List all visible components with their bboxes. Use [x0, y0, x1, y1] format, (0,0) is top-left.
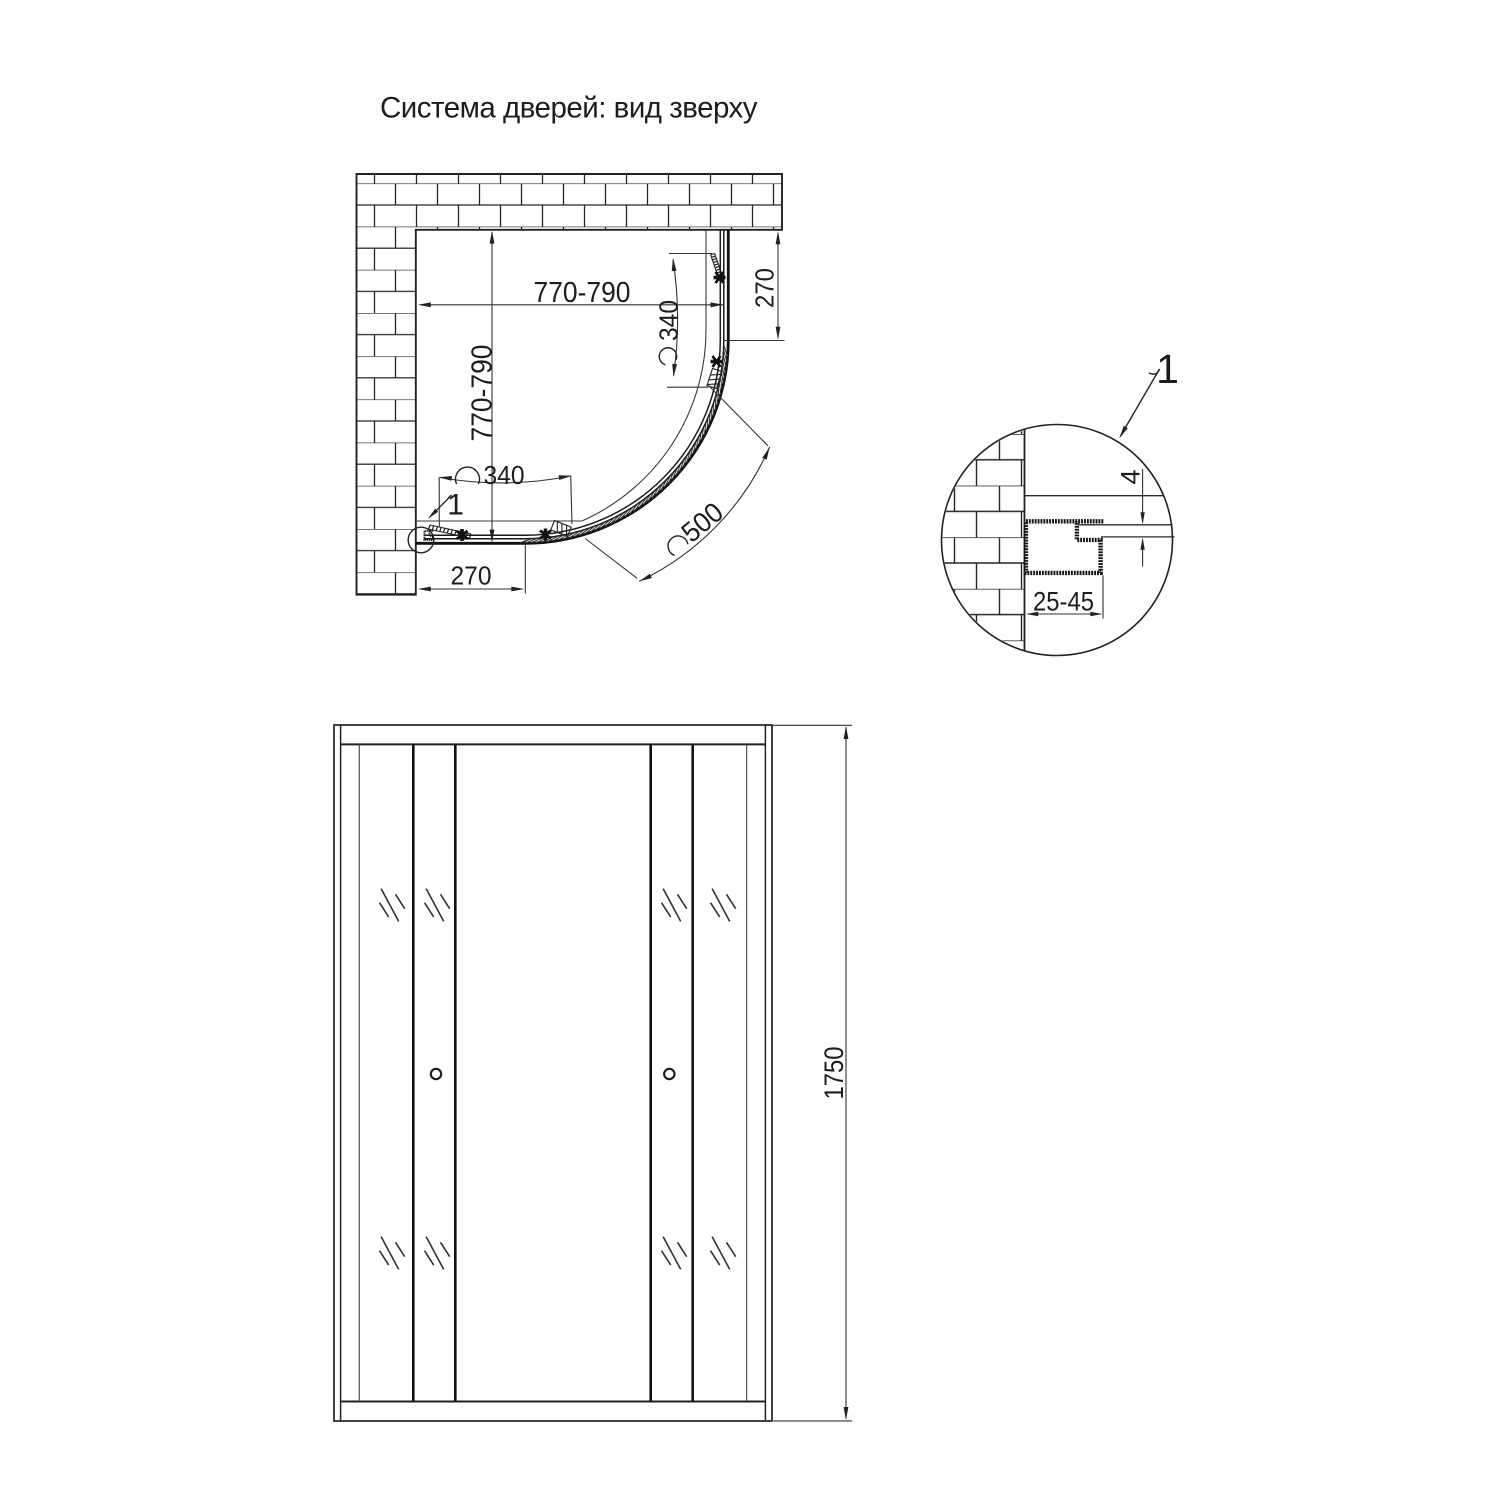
svg-text:770-790: 770-790 — [534, 277, 631, 309]
svg-text:Система дверей: вид зверху: Система дверей: вид зверху — [380, 91, 758, 124]
svg-text:270: 270 — [750, 268, 780, 308]
svg-text:340: 340 — [654, 300, 684, 341]
svg-text:1: 1 — [1156, 346, 1179, 392]
svg-text:1750: 1750 — [819, 1047, 849, 1100]
svg-text:25-45: 25-45 — [1033, 587, 1094, 617]
svg-text:4: 4 — [1116, 469, 1146, 484]
svg-text:770-790: 770-790 — [467, 345, 499, 442]
svg-text:340: 340 — [484, 460, 525, 490]
svg-text:1: 1 — [447, 488, 464, 521]
svg-text:270: 270 — [451, 561, 492, 591]
